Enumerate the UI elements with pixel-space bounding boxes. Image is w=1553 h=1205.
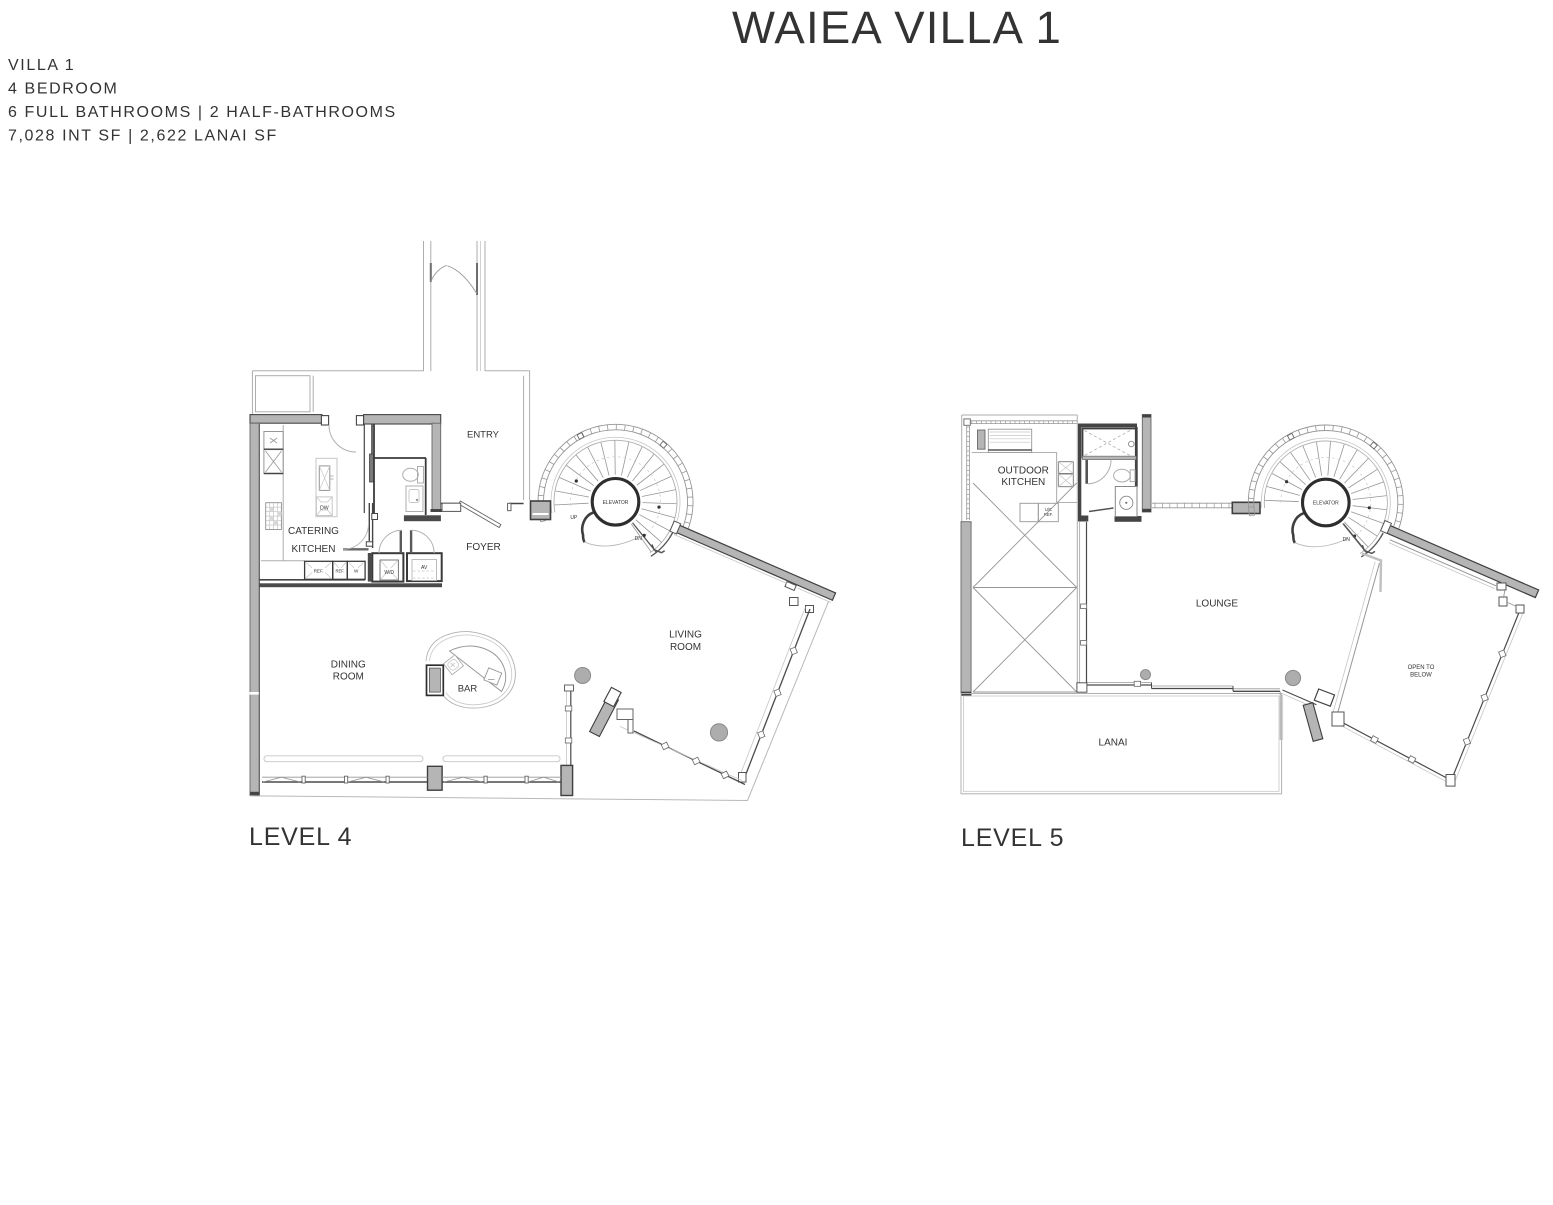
svg-text:DW: DW	[320, 506, 329, 512]
svg-text:DINING: DINING	[331, 659, 366, 670]
svg-text:LIVING: LIVING	[669, 630, 702, 641]
svg-text:WAIEA VILLA 1: WAIEA VILLA 1	[732, 2, 1062, 53]
svg-text:REF.: REF.	[335, 569, 344, 574]
svg-text:6 FULL BATHROOMS | 2 HALF-BATH: 6 FULL BATHROOMS | 2 HALF-BATHROOMS	[8, 104, 397, 121]
svg-text:DN: DN	[635, 536, 643, 542]
svg-text:KITCHEN: KITCHEN	[292, 544, 336, 555]
svg-text:LEVEL 4: LEVEL 4	[249, 823, 352, 851]
svg-text:OUTDOOR: OUTDOOR	[998, 465, 1049, 476]
svg-text:4 BEDROOM: 4 BEDROOM	[8, 81, 118, 98]
svg-text:7,028 INT SF | 2,622 LANAI SF: 7,028 INT SF | 2,622 LANAI SF	[8, 128, 278, 145]
svg-text:REF.: REF.	[314, 569, 324, 574]
svg-text:LOUNGE: LOUNGE	[1196, 599, 1239, 610]
svg-text:ELEVATOR: ELEVATOR	[603, 500, 629, 506]
svg-text:LEVEL 5: LEVEL 5	[961, 824, 1064, 852]
svg-text:BAR: BAR	[458, 684, 478, 695]
svg-text:BELOW: BELOW	[1410, 673, 1432, 679]
svg-text:OPEN TO: OPEN TO	[1408, 665, 1435, 671]
svg-text:CATERING: CATERING	[288, 526, 339, 537]
svg-text:FOYER: FOYER	[466, 542, 500, 553]
svg-text:VILLA 1: VILLA 1	[8, 57, 75, 74]
svg-text:ROOM: ROOM	[333, 671, 364, 682]
svg-text:ELEVATOR: ELEVATOR	[1313, 501, 1339, 507]
svg-text:ROOM: ROOM	[670, 642, 701, 653]
svg-text:W/D: W/D	[384, 570, 394, 576]
svg-text:AV: AV	[421, 565, 428, 571]
svg-text:UP: UP	[570, 515, 578, 521]
svg-text:DN: DN	[1343, 537, 1351, 543]
svg-text:KITCHEN: KITCHEN	[1001, 477, 1045, 488]
svg-text:W: W	[354, 569, 359, 574]
svg-text:LANAI: LANAI	[1099, 738, 1128, 749]
svg-text:ENTRY: ENTRY	[467, 430, 500, 441]
